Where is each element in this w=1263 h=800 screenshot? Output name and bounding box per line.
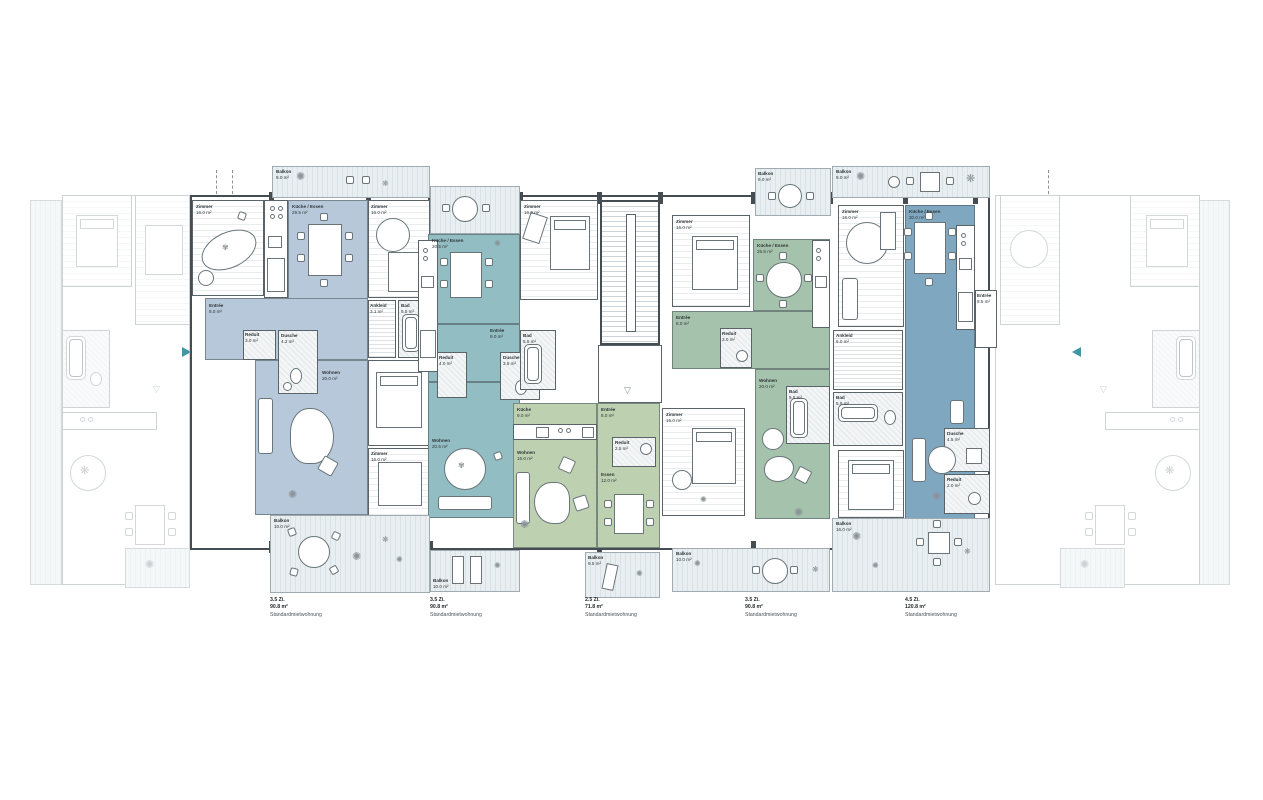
round-table-icon <box>928 446 956 474</box>
sofa-icon <box>258 398 273 454</box>
unit-caption-1: 3.5 Zi. 90.8 m² Standardmietwohnung <box>270 597 322 618</box>
washer-icon <box>968 492 981 505</box>
room-label: Zimmer16.0 m² <box>196 204 213 215</box>
sofa-icon <box>912 438 926 482</box>
cabinet-icon <box>267 258 285 292</box>
chair-icon <box>346 176 354 184</box>
round-table-icon <box>766 262 802 298</box>
cabinet-icon <box>420 330 436 358</box>
chair-icon <box>362 176 370 184</box>
bathtub-icon <box>838 404 878 422</box>
room-label: Balkon9.0 m² <box>836 169 851 180</box>
round-table-icon <box>376 218 410 252</box>
starfish-icon: ✺ <box>932 492 941 503</box>
chair-icon <box>297 254 305 262</box>
hob-icon <box>270 214 275 219</box>
down-arrow-icon: ▽ <box>624 386 631 395</box>
unit-caption-5: 4.5 Zi. 120.8 m² Standardmietwohnung <box>905 597 957 618</box>
chair-icon <box>482 204 490 212</box>
plant-icon: ❋ <box>1165 466 1174 477</box>
room-label: Wohnen16.0 m² <box>517 450 535 461</box>
shower-icon <box>966 448 982 464</box>
starfish-icon: ✺ <box>145 560 154 571</box>
starfish-icon: ✺ <box>1080 560 1089 571</box>
bed-icon <box>145 225 183 275</box>
room-label: Bad5.5 m² <box>401 303 414 314</box>
room-label: Balkon9.0 m² <box>276 169 291 180</box>
room-label: Entrée8.0 m² <box>601 407 615 418</box>
chair-icon <box>485 258 493 266</box>
chair-icon <box>320 279 328 287</box>
room-label: Balkon16.0 m² <box>836 521 852 532</box>
toilet-icon <box>290 368 302 384</box>
chaise-icon <box>842 278 858 320</box>
sofa-icon <box>950 400 964 424</box>
unit-caption-2: 3.5 Zi. 90.8 m² Standardmietwohnung <box>430 597 482 618</box>
bathtub-icon <box>524 344 542 384</box>
dimension-dash <box>1048 170 1049 194</box>
room-label: Wohnen20.0 m² <box>759 378 777 389</box>
chair-icon <box>779 300 787 308</box>
floor-lamp-icon <box>283 382 292 391</box>
lounge-chair-icon <box>470 556 482 584</box>
chair-icon <box>954 538 962 546</box>
dining-table-icon <box>614 494 644 534</box>
balcony-strip <box>30 200 62 585</box>
chair-icon <box>946 177 954 185</box>
room-label: Bad5.5 m² <box>789 389 802 400</box>
chair-icon <box>933 558 941 566</box>
room-label: Reduit3.0 m² <box>245 332 259 343</box>
flower-icon: ✾ <box>222 244 229 252</box>
plant-icon: ❋ <box>382 536 389 544</box>
room-label: Entrée8.5 m² <box>977 293 991 304</box>
room-label: Wohnen20.0 m² <box>322 370 340 381</box>
room-label: Dusche3.5 m² <box>503 355 520 366</box>
dining-table-icon <box>1095 505 1125 545</box>
pillow-icon <box>852 464 890 474</box>
neighbour-balcony <box>1060 548 1125 588</box>
stool-icon <box>198 270 214 286</box>
neighbour-kitchen-counter <box>1105 412 1200 430</box>
round-table-icon <box>1010 230 1048 268</box>
hob-icon <box>961 233 966 238</box>
hob-icon <box>1170 417 1175 422</box>
bathtub-icon <box>1176 336 1196 380</box>
room-label: Balkon9.0 m² <box>758 171 773 182</box>
chair-icon <box>752 566 760 574</box>
starfish-icon: ✺ <box>700 496 707 504</box>
hob-icon <box>566 428 571 433</box>
sofa-icon <box>438 496 492 510</box>
sink-icon <box>959 258 972 270</box>
hob-icon <box>558 428 563 433</box>
plant-icon: ❋ <box>812 566 819 574</box>
floor-plan-canvas: ❋ ✺ ▽ ❋ ✺ ▽ <box>0 0 1263 800</box>
chair-icon <box>125 528 133 536</box>
chair-icon <box>1085 528 1093 536</box>
coffee-table-icon <box>534 482 570 524</box>
hob-icon <box>88 417 93 422</box>
starfish-icon: ✺ <box>636 570 643 578</box>
sink-icon <box>268 236 282 248</box>
unit-caption-3: 2.5 Zi. 71.8 m² Standardmietwohnung <box>585 597 637 618</box>
chair-icon <box>906 177 914 185</box>
balcony-bottom-4 <box>672 548 830 592</box>
plant-icon: ❋ <box>80 466 89 477</box>
hob-icon <box>1178 417 1183 422</box>
neighbour-balcony <box>125 548 190 588</box>
room-label: Zimmer16.0 m² <box>524 204 541 215</box>
starfish-icon: ✺ <box>520 520 529 531</box>
zone-divider <box>597 425 598 545</box>
chair-icon <box>646 500 654 508</box>
plant-icon: ❋ <box>964 548 971 556</box>
room-label: Balkon9.5 m² <box>588 555 603 566</box>
starfish-icon: ✺ <box>794 508 803 519</box>
room-label: Essen12.0 m² <box>601 472 617 483</box>
sofa-icon <box>516 472 530 524</box>
chair-icon <box>916 538 924 546</box>
sink-icon <box>536 427 549 438</box>
toilet-icon <box>90 372 102 386</box>
room-label: Bad5.5 m² <box>836 395 849 406</box>
chair-icon <box>440 280 448 288</box>
chair-icon <box>933 520 941 528</box>
room-label: Balkon10.0 m² <box>676 551 692 562</box>
hob-icon <box>270 206 275 211</box>
starfish-icon: ✺ <box>872 562 879 570</box>
starfish-icon: ✺ <box>494 240 501 248</box>
chair-icon <box>768 192 776 200</box>
chair-icon <box>440 258 448 266</box>
chair-icon <box>604 518 612 526</box>
chair-icon <box>345 232 353 240</box>
room-label: Zimmer16.0 m² <box>371 451 388 462</box>
sink-icon <box>421 276 434 288</box>
washer-icon <box>736 350 748 362</box>
down-arrow-icon: ▽ <box>153 385 160 394</box>
hob-icon <box>961 241 966 246</box>
hob-icon <box>80 417 85 422</box>
room-label: Zimmer16.0 m² <box>676 219 693 230</box>
starfish-icon: ✺ <box>288 490 297 501</box>
starfish-icon: ✺ <box>694 560 701 568</box>
room-label: Entrée8.0 m² <box>209 303 223 314</box>
chair-icon <box>1128 528 1136 536</box>
pillow-icon <box>380 376 418 386</box>
dining-table-icon <box>914 222 946 274</box>
round-table-icon <box>778 184 802 208</box>
ball-chair-icon <box>672 470 692 490</box>
dining-table-icon <box>135 505 165 545</box>
chair-icon <box>756 274 764 282</box>
table-icon <box>928 532 950 554</box>
table-icon <box>920 172 940 192</box>
flower-icon: ✾ <box>458 462 465 470</box>
lounge-chair-icon <box>452 556 464 584</box>
room-label: Reduit4.0 m² <box>439 355 453 366</box>
chair-icon <box>485 280 493 288</box>
chair-icon <box>804 274 812 282</box>
chair-icon <box>646 518 654 526</box>
pillow-icon <box>696 432 732 442</box>
room-label: Dusche4.5 m² <box>947 431 964 442</box>
boiler-icon <box>640 443 652 455</box>
plant-icon: ❋ <box>382 180 389 188</box>
chair-icon <box>1085 512 1093 520</box>
entry-arrow-icon <box>182 347 191 357</box>
room-label: Reduit2.5 m² <box>615 440 629 451</box>
round-table-icon <box>444 448 486 490</box>
down-arrow-icon: ▽ <box>1100 385 1107 394</box>
hob-icon <box>816 248 821 253</box>
desk-icon <box>880 212 896 250</box>
pillow-icon <box>80 219 114 229</box>
round-table-icon <box>762 558 788 584</box>
chair-icon <box>948 252 956 260</box>
sink-icon <box>815 276 827 288</box>
hob-icon <box>278 206 283 211</box>
pillow-icon <box>554 220 586 230</box>
bathtub-icon <box>790 398 808 438</box>
room-label: Küche / Essen20.5 m² <box>432 238 463 249</box>
starfish-icon: ✺ <box>296 172 305 183</box>
room-label: Zimmer16.0 m² <box>842 209 859 220</box>
room-label: Wohnen20.5 m² <box>432 438 450 449</box>
fridge-icon <box>958 292 973 322</box>
plant-pot-icon <box>888 176 900 188</box>
chair-icon <box>125 512 133 520</box>
chair-icon <box>806 192 814 200</box>
room-label: Entrée8.0 m² <box>676 315 690 326</box>
room-label: Ankleid3.1 m² <box>370 303 387 314</box>
hob-icon <box>278 214 283 219</box>
chair-icon <box>604 500 612 508</box>
hob-icon <box>423 256 428 261</box>
room-label: Balkon10.0 m² <box>433 578 449 589</box>
dimension-dash <box>232 170 233 194</box>
starfish-icon: ✺ <box>856 172 865 183</box>
room-label: Balkon10.0 m² <box>274 518 290 529</box>
chair-icon <box>904 228 912 236</box>
dining-table-icon <box>450 252 482 298</box>
hob-icon <box>816 256 821 261</box>
starfish-icon: ✺ <box>852 532 861 543</box>
stair-landing <box>626 214 636 332</box>
pillow-icon <box>1150 219 1184 229</box>
room-label: Küche / Essen30.0 m² <box>909 209 940 220</box>
room-label: Ankleid6.0 m² <box>836 333 853 344</box>
room-label: Küche / Essen25.5 m² <box>757 243 788 254</box>
chair-icon <box>345 254 353 262</box>
room-label: Zimmer16.0 m² <box>371 204 388 215</box>
neighbour-kitchen-counter <box>62 412 157 430</box>
room-label: Entrée9.0 m² <box>490 328 504 339</box>
round-table-icon <box>298 536 330 568</box>
chair-icon <box>925 278 933 286</box>
room-label: Zimmer16.0 m² <box>666 412 683 423</box>
chair-icon <box>168 512 176 520</box>
cabinet-icon <box>582 427 594 438</box>
starfish-icon: ✺ <box>494 562 501 570</box>
room-label: Reduit2.0 m² <box>947 477 961 488</box>
starfish-icon: ✺ <box>352 552 361 563</box>
chair-icon <box>1128 512 1136 520</box>
hob-icon <box>423 248 428 253</box>
bed-icon <box>378 462 422 506</box>
chair-icon <box>904 252 912 260</box>
plant-icon: ❋ <box>966 174 975 185</box>
room-label: Bad5.5 m² <box>523 333 536 344</box>
dimension-dash <box>216 170 217 194</box>
toilet-icon <box>884 410 896 425</box>
round-table-icon <box>452 196 478 222</box>
room-label: Küche / Essen29.5 m² <box>292 204 323 215</box>
bathtub-icon <box>66 336 86 380</box>
pillow-icon <box>696 240 734 250</box>
starfish-icon: ✺ <box>396 556 403 564</box>
chair-icon <box>790 566 798 574</box>
unit-caption-4: 3.5 Zi. 90.8 m² Standardmietwohnung <box>745 597 797 618</box>
dining-table-icon <box>308 224 342 276</box>
balcony-strip <box>1198 200 1230 585</box>
entry-arrow-icon <box>1072 347 1081 357</box>
chair-icon <box>168 528 176 536</box>
room-label: Dusche4.2 m² <box>281 333 298 344</box>
round-table-icon <box>762 428 784 450</box>
chair-icon <box>948 228 956 236</box>
chair-icon <box>442 204 450 212</box>
room-label: Reduit3.0 m² <box>722 331 736 342</box>
room-label: Küche9.0 m² <box>517 407 531 418</box>
chair-icon <box>297 232 305 240</box>
